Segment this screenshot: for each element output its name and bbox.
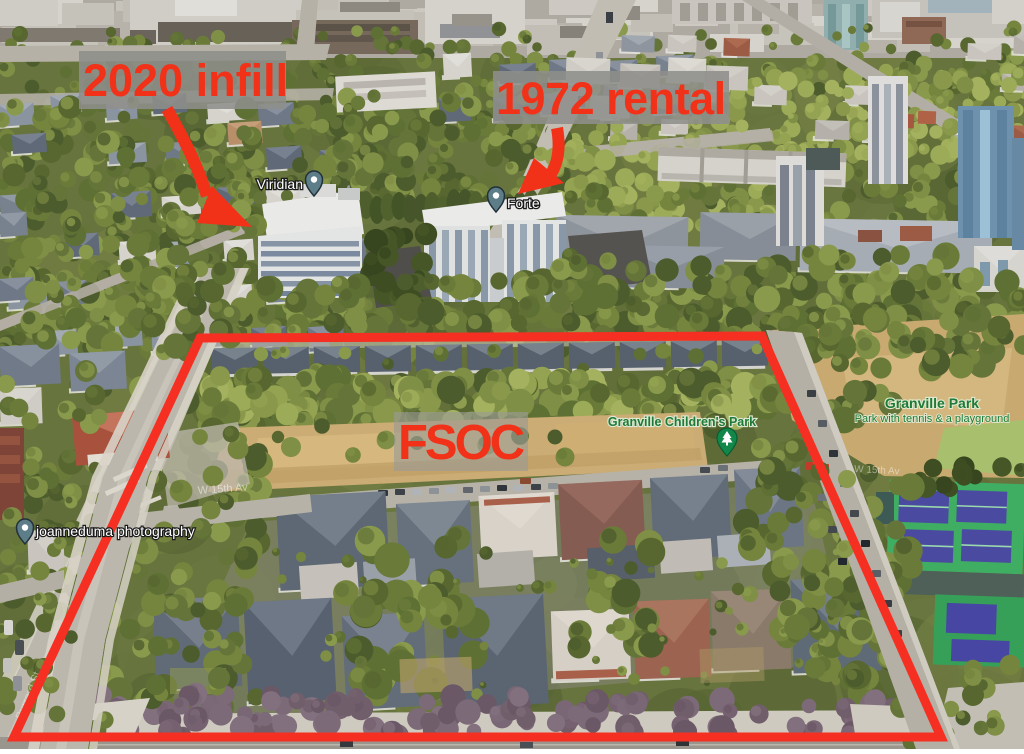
svg-text:1972 rental: 1972 rental bbox=[496, 73, 726, 124]
svg-text:joanneduma photography: joanneduma photography bbox=[35, 523, 195, 539]
svg-text:Granville Children's Park: Granville Children's Park bbox=[608, 415, 756, 429]
svg-text:Granville Park: Granville Park bbox=[885, 395, 979, 411]
svg-text:FSOC: FSOC bbox=[398, 416, 525, 470]
svg-text:2020 infill: 2020 infill bbox=[83, 55, 288, 106]
svg-text:Forte: Forte bbox=[507, 195, 540, 211]
svg-text:Viridian: Viridian bbox=[257, 176, 303, 192]
svg-text:Park with tennis & a playgroun: Park with tennis & a playground bbox=[855, 413, 1010, 425]
